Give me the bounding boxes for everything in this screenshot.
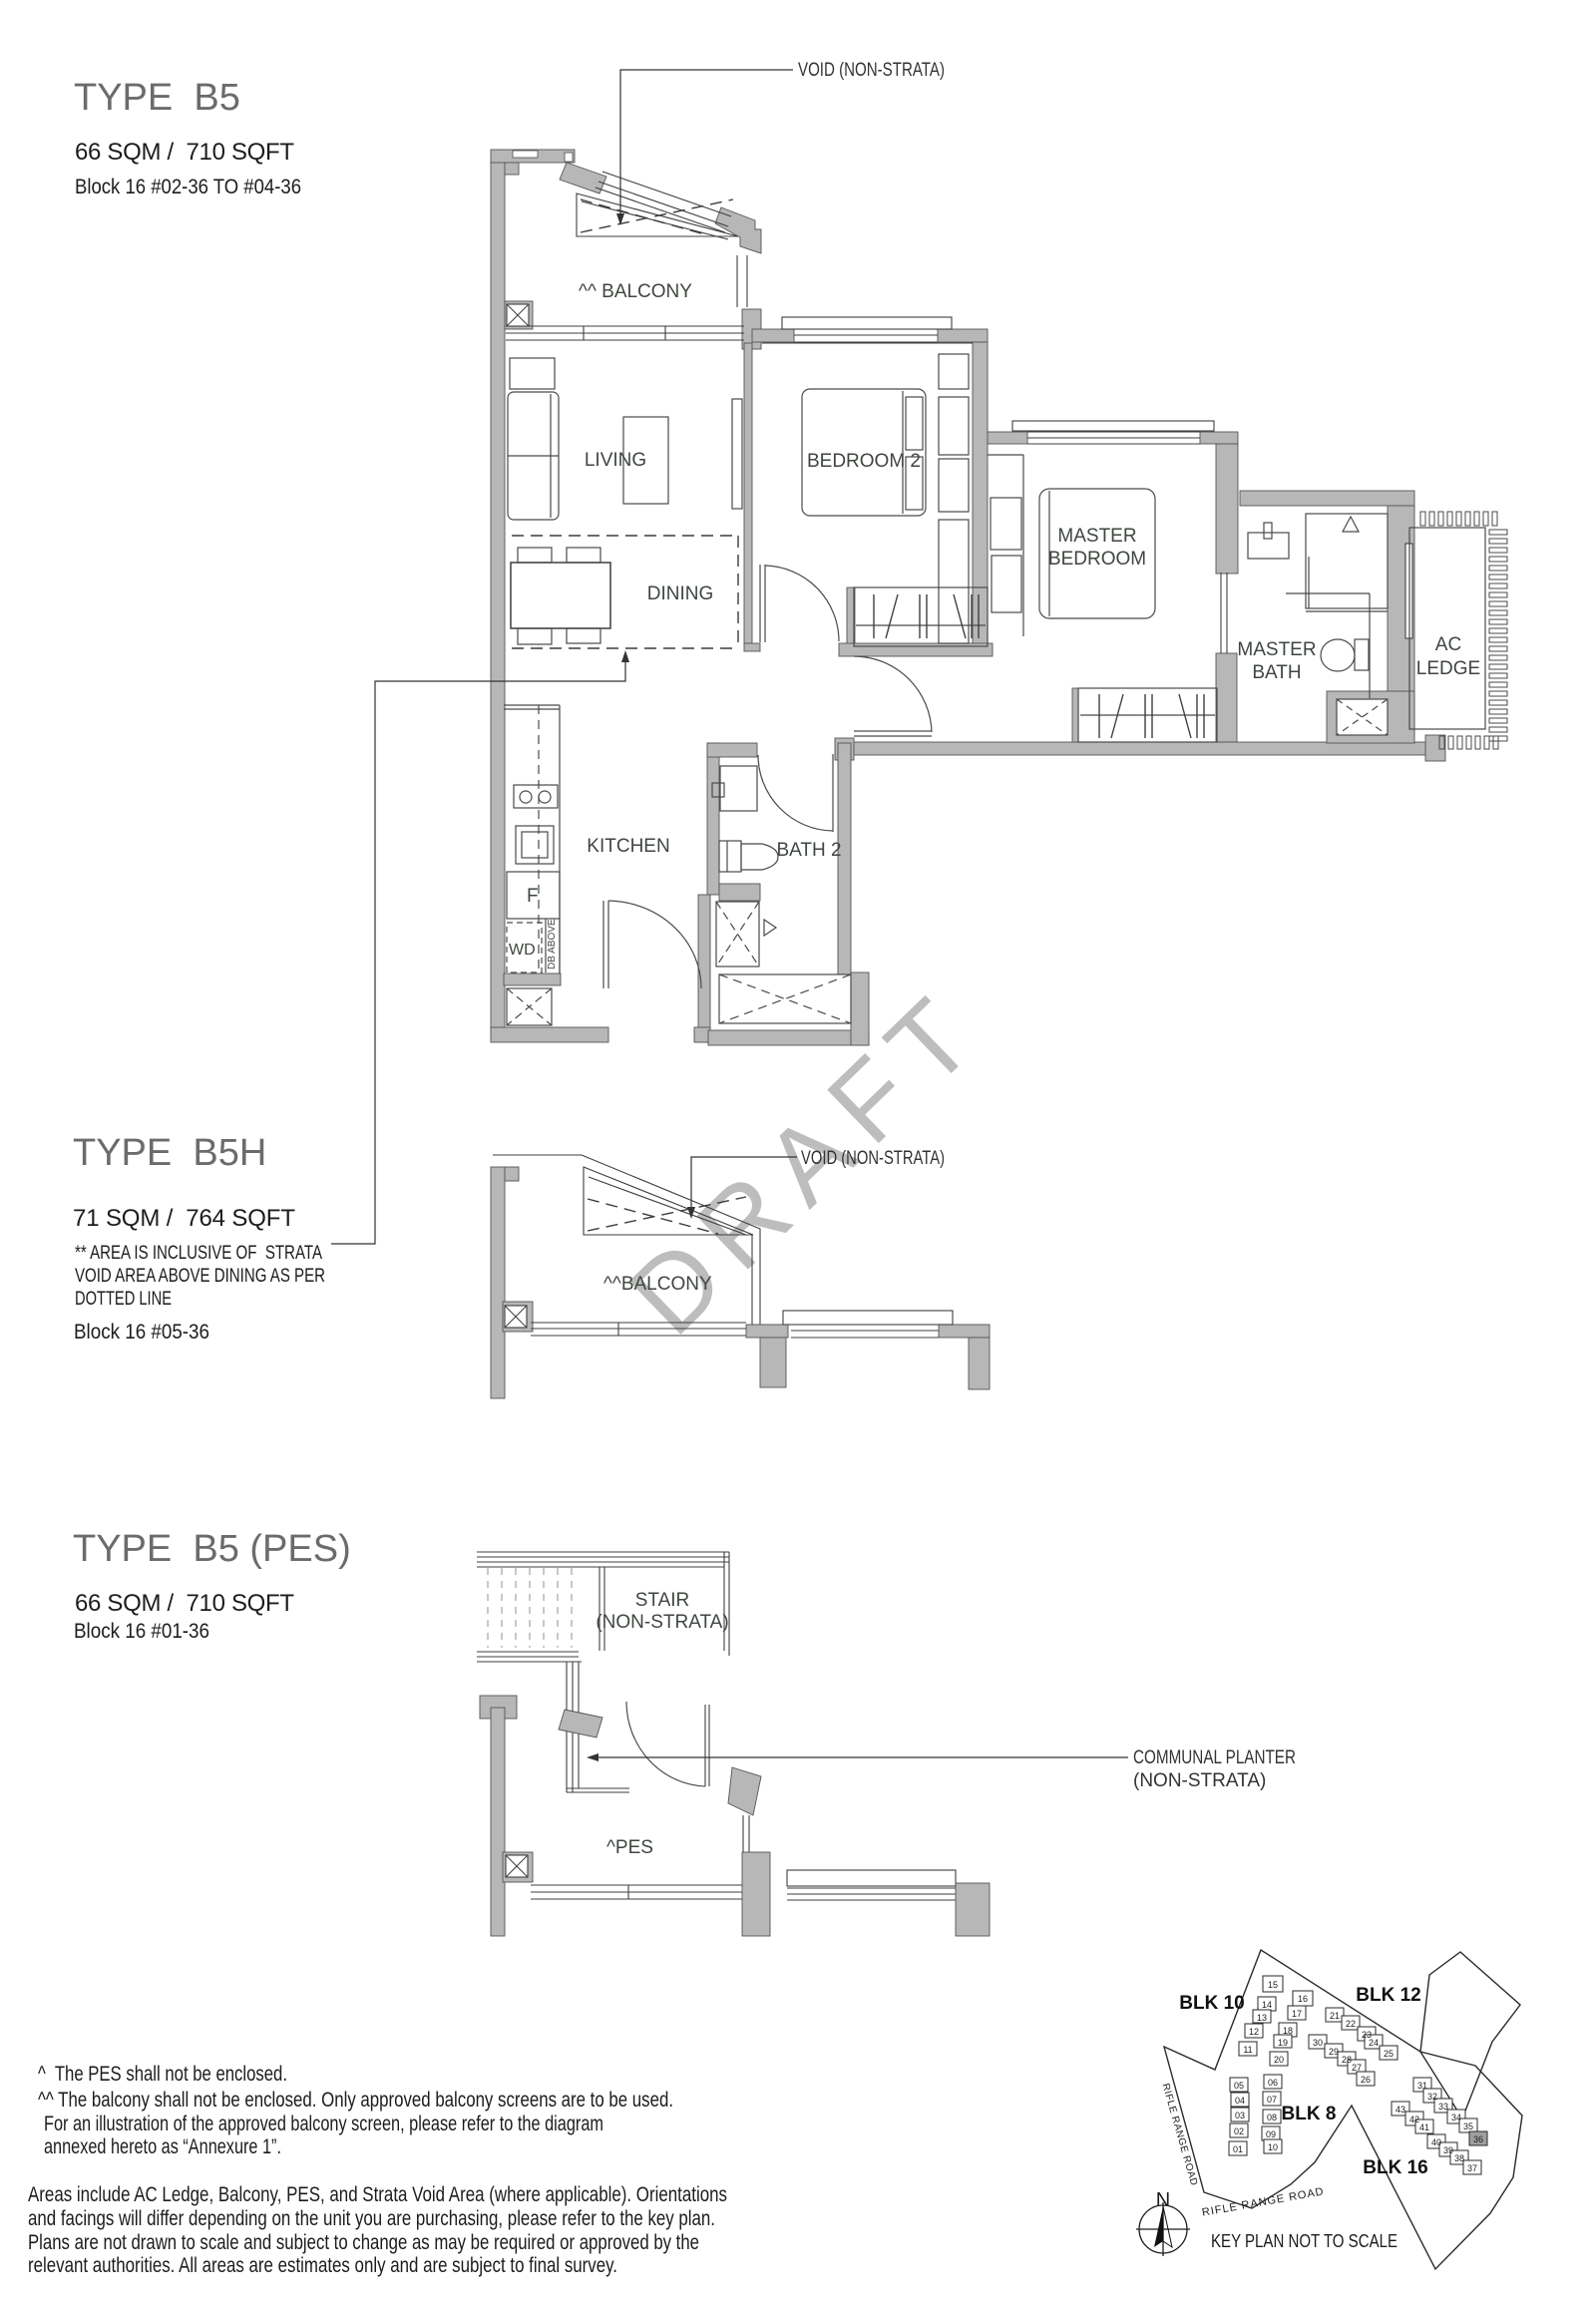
svg-text:BEDROOM 2: BEDROOM 2 bbox=[807, 451, 921, 472]
svg-text:STAIR: STAIR bbox=[635, 1590, 690, 1611]
svg-text:30: 30 bbox=[1313, 2038, 1323, 2048]
svg-text:TYPE B5 (PES): TYPE B5 (PES) bbox=[73, 1528, 351, 1570]
svg-text:16: 16 bbox=[1298, 1994, 1308, 2004]
svg-text:37: 37 bbox=[1467, 2163, 1477, 2173]
svg-text:TYPE B5: TYPE B5 bbox=[74, 77, 240, 119]
svg-text:AC: AC bbox=[1435, 634, 1461, 655]
svg-text:38: 38 bbox=[1454, 2153, 1464, 2163]
svg-text:BLK 16: BLK 16 bbox=[1363, 2157, 1427, 2178]
svg-text:Block 16 #05-36: Block 16 #05-36 bbox=[74, 1321, 209, 1344]
svg-text:BEDROOM: BEDROOM bbox=[1048, 549, 1146, 570]
svg-text:24: 24 bbox=[1369, 2038, 1379, 2048]
svg-text:17: 17 bbox=[1292, 2009, 1302, 2019]
svg-text:19: 19 bbox=[1278, 2038, 1288, 2048]
svg-text:Block 16 #02-36 TO #04-36: Block 16 #02-36 TO #04-36 bbox=[75, 176, 301, 198]
svg-text:VOID (NON-STRATA): VOID (NON-STRATA) bbox=[801, 1148, 945, 1169]
svg-text:BLK 12: BLK 12 bbox=[1356, 1985, 1420, 2006]
svg-text:Areas include AC Ledge, Balcon: Areas include AC Ledge, Balcony, PES, an… bbox=[28, 2183, 727, 2206]
svg-text:08: 08 bbox=[1267, 2113, 1277, 2122]
svg-text:BLK 10: BLK 10 bbox=[1179, 1993, 1244, 2014]
svg-text:DB ABOVE: DB ABOVE bbox=[547, 919, 558, 969]
svg-text:MASTER: MASTER bbox=[1237, 639, 1316, 660]
svg-text:33: 33 bbox=[1438, 2102, 1448, 2112]
svg-text:26: 26 bbox=[1361, 2075, 1371, 2085]
svg-text:(NON-STRATA): (NON-STRATA) bbox=[596, 1612, 728, 1633]
svg-text:LEDGE: LEDGE bbox=[1416, 658, 1480, 679]
svg-text:^ The PES shall not be enclos: ^ The PES shall not be enclosed. bbox=[38, 2063, 287, 2086]
svg-text:RIFLE RANGE ROAD: RIFLE RANGE ROAD bbox=[1201, 2185, 1325, 2218]
svg-text:^PES: ^PES bbox=[606, 1837, 653, 1858]
svg-text:DINING: DINING bbox=[647, 583, 714, 604]
svg-text:VOID (NON-STRATA): VOID (NON-STRATA) bbox=[798, 60, 945, 81]
svg-text:BATH: BATH bbox=[1252, 662, 1301, 683]
svg-text:41: 41 bbox=[1419, 2122, 1429, 2132]
svg-text:relevant authorities. All area: relevant authorities. All areas are esti… bbox=[28, 2254, 617, 2277]
svg-text:35: 35 bbox=[1463, 2121, 1473, 2131]
svg-text:BATH 2: BATH 2 bbox=[776, 840, 841, 861]
svg-text:28: 28 bbox=[1342, 2055, 1352, 2065]
svg-text:For an illustration of the app: For an illustration of the approved balc… bbox=[44, 2113, 603, 2135]
svg-text:02: 02 bbox=[1234, 2126, 1244, 2136]
svg-text:N: N bbox=[1156, 2189, 1170, 2211]
svg-text:22: 22 bbox=[1346, 2019, 1356, 2029]
svg-text:27: 27 bbox=[1352, 2063, 1362, 2073]
svg-text:BLK 8: BLK 8 bbox=[1282, 2104, 1337, 2124]
svg-text:10: 10 bbox=[1268, 2142, 1278, 2152]
svg-text:06: 06 bbox=[1268, 2078, 1278, 2088]
svg-text:Block 16 #01-36: Block 16 #01-36 bbox=[74, 1620, 209, 1643]
svg-text:21: 21 bbox=[1330, 2011, 1340, 2021]
svg-text:12: 12 bbox=[1249, 2027, 1259, 2037]
svg-text:03: 03 bbox=[1235, 2111, 1245, 2120]
svg-text:TYPE B5H: TYPE B5H bbox=[73, 1132, 266, 1174]
svg-text:annexed hereto as “Annexure 1”: annexed hereto as “Annexure 1”. bbox=[44, 2135, 281, 2158]
svg-text:** AREA IS INCLUSIVE OF STRAT: ** AREA IS INCLUSIVE OF STRATA bbox=[75, 1243, 322, 1264]
svg-text:RIFLE RANGE ROAD: RIFLE RANGE ROAD bbox=[1159, 2083, 1199, 2187]
svg-text:40: 40 bbox=[1431, 2137, 1441, 2147]
svg-text:66 SQM / 710 SQFT: 66 SQM / 710 SQFT bbox=[75, 139, 294, 166]
svg-text:04: 04 bbox=[1235, 2096, 1245, 2106]
svg-text:F: F bbox=[527, 886, 539, 907]
svg-text:43: 43 bbox=[1396, 2105, 1405, 2115]
svg-text:Plans are not drawn to scale a: Plans are not drawn to scale and subject… bbox=[28, 2231, 699, 2254]
svg-text:^^BALCONY: ^^BALCONY bbox=[603, 1274, 712, 1295]
svg-text:LIVING: LIVING bbox=[585, 450, 646, 471]
svg-text:18: 18 bbox=[1283, 2026, 1293, 2036]
svg-text:01: 01 bbox=[1233, 2144, 1243, 2154]
svg-text:09: 09 bbox=[1266, 2129, 1276, 2139]
svg-text:VOID AREA ABOVE DINING AS PER: VOID AREA ABOVE DINING AS PER bbox=[75, 1266, 325, 1287]
svg-text:DOTTED LINE: DOTTED LINE bbox=[75, 1289, 172, 1310]
svg-text:42: 42 bbox=[1409, 2115, 1419, 2124]
svg-text:^^ BALCONY: ^^ BALCONY bbox=[579, 281, 692, 302]
svg-text:36: 36 bbox=[1473, 2134, 1483, 2144]
svg-text:66 SQM / 710 SQFT: 66 SQM / 710 SQFT bbox=[75, 1590, 294, 1617]
svg-text:WD: WD bbox=[509, 942, 536, 959]
svg-text:KEY PLAN NOT TO SCALE: KEY PLAN NOT TO SCALE bbox=[1211, 2231, 1397, 2251]
svg-text:05: 05 bbox=[1234, 2081, 1244, 2091]
svg-text:and facings will differ depend: and facings will differ depending on the… bbox=[28, 2207, 715, 2230]
svg-text:14: 14 bbox=[1262, 2000, 1272, 2010]
svg-text:25: 25 bbox=[1384, 2049, 1394, 2059]
svg-text:20: 20 bbox=[1274, 2055, 1284, 2065]
svg-text:31: 31 bbox=[1417, 2081, 1427, 2091]
svg-text:34: 34 bbox=[1451, 2113, 1461, 2122]
svg-text:COMMUNAL PLANTER: COMMUNAL PLANTER bbox=[1133, 1747, 1296, 1768]
svg-text:71 SQM / 764 SQFT: 71 SQM / 764 SQFT bbox=[73, 1205, 295, 1232]
svg-text:39: 39 bbox=[1443, 2145, 1453, 2155]
svg-text:29: 29 bbox=[1329, 2047, 1339, 2057]
svg-text:15: 15 bbox=[1268, 1980, 1278, 1990]
svg-text:MASTER: MASTER bbox=[1057, 526, 1136, 547]
svg-text:11: 11 bbox=[1243, 2045, 1252, 2055]
svg-text:KITCHEN: KITCHEN bbox=[587, 836, 669, 857]
svg-text:^^ The balcony shall not be en: ^^ The balcony shall not be enclosed. On… bbox=[38, 2089, 673, 2112]
svg-text:07: 07 bbox=[1267, 2095, 1277, 2105]
svg-text:13: 13 bbox=[1257, 2013, 1267, 2023]
svg-text:32: 32 bbox=[1427, 2092, 1437, 2102]
svg-text:(NON-STRATA): (NON-STRATA) bbox=[1133, 1770, 1266, 1791]
